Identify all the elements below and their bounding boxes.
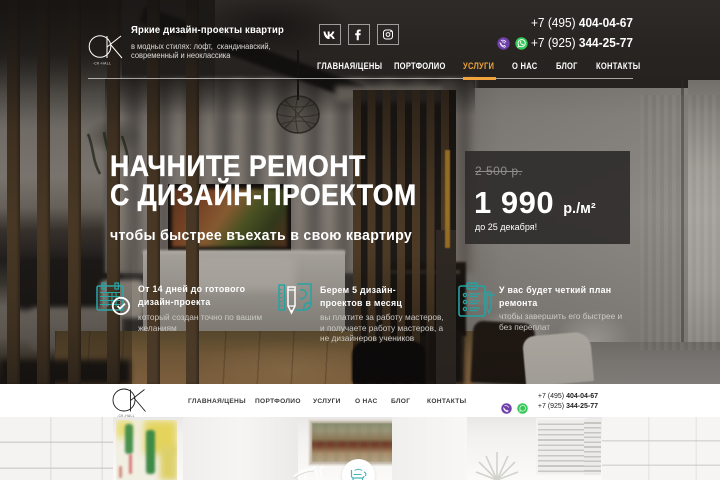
svg-text:-CK-HALL: -CK-HALL <box>93 62 112 66</box>
